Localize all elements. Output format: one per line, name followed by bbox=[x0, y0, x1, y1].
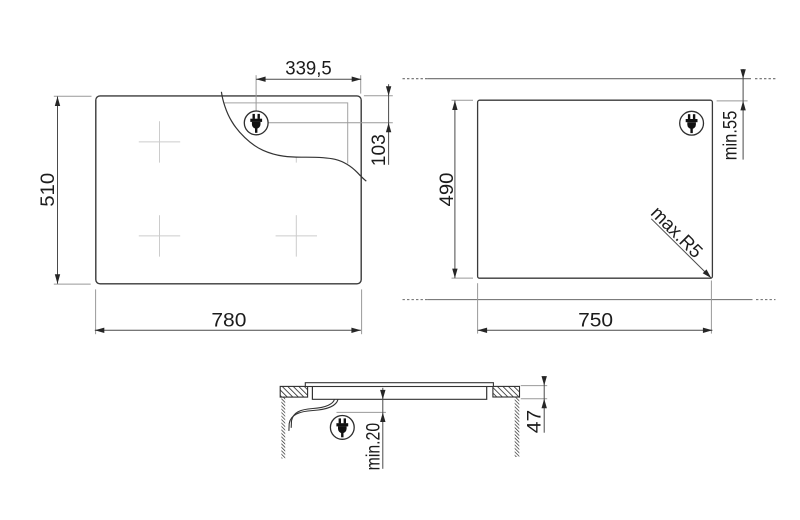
svg-text:339,5: 339,5 bbox=[285, 59, 332, 80]
svg-text:510: 510 bbox=[38, 173, 59, 207]
svg-text:750: 750 bbox=[578, 311, 613, 332]
svg-text:780: 780 bbox=[211, 311, 246, 332]
svg-text:min.55: min.55 bbox=[721, 111, 742, 161]
svg-text:min.20: min.20 bbox=[364, 423, 385, 471]
svg-text:103: 103 bbox=[369, 134, 390, 166]
svg-text:47: 47 bbox=[524, 410, 545, 434]
svg-text:490: 490 bbox=[437, 173, 458, 207]
